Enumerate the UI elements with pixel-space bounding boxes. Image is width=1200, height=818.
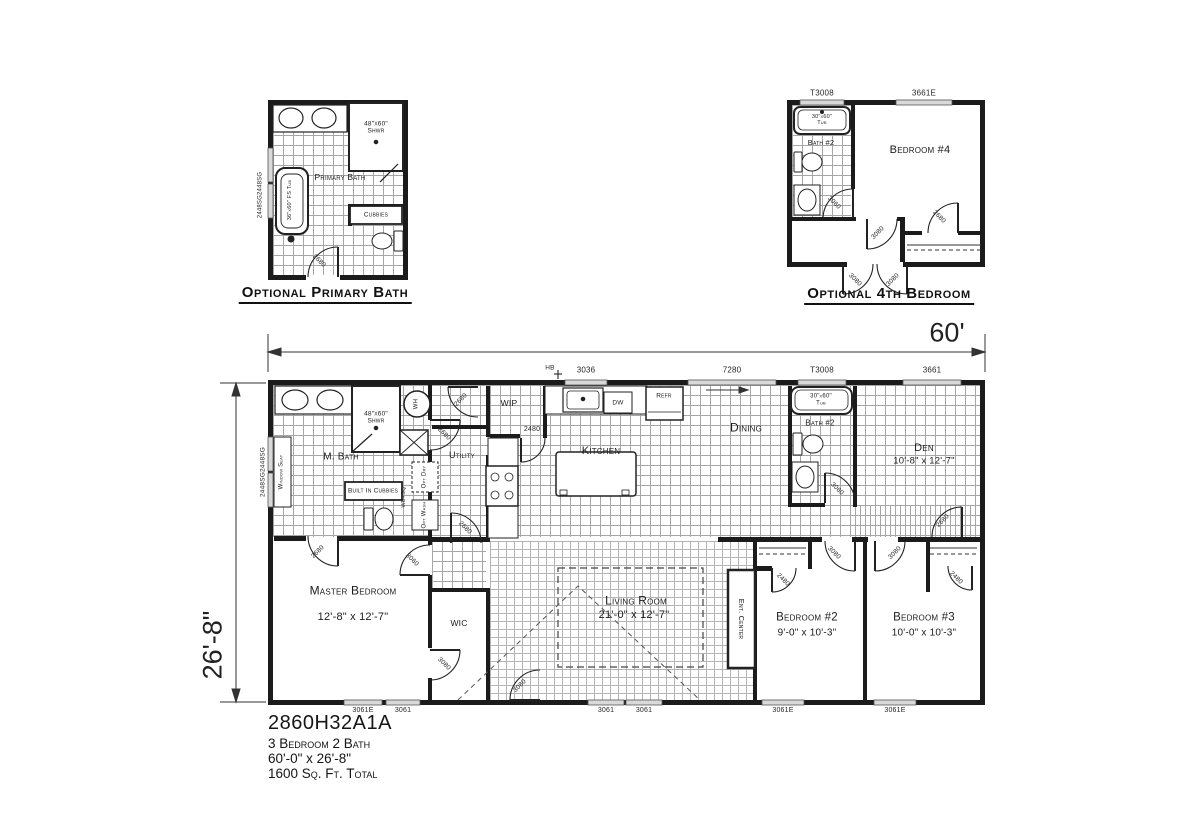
- toilet-bowl: [372, 233, 392, 249]
- detail1-shower-label: 48"x60" Shwr: [364, 121, 388, 136]
- toilet-bowl: [375, 508, 393, 530]
- faucet: [581, 397, 585, 401]
- window-label-3061: 3061: [636, 707, 652, 715]
- plan-sqft: 1600 Sq. Ft. Total: [268, 766, 377, 781]
- toilet-bowl: [803, 435, 823, 453]
- room-label-kitchen: Kitchen: [582, 445, 621, 457]
- window-label-7280: 7280: [723, 367, 742, 376]
- room-dims-master: 12'-8" x 12'-7": [318, 611, 389, 623]
- window-label-t3008: T3008: [810, 367, 834, 376]
- detail2-tub-label: 30"x60" Tub: [812, 114, 832, 126]
- room-label-bath2: Bath #2: [805, 420, 834, 429]
- hose-bib-label: HB: [545, 364, 554, 371]
- cubbies-label: Built In Cubbies: [348, 487, 398, 494]
- lav-bowl: [796, 466, 814, 488]
- shower-drain: [374, 426, 378, 430]
- detail1-room-label: Primary Bath: [315, 173, 366, 183]
- detail1-tub-label: 36"x60" FS Tub: [287, 180, 293, 221]
- wb-sq-label: WB+SQ: [401, 486, 407, 507]
- window-label-3061e: 3061E: [884, 707, 905, 715]
- lav-bowl: [798, 189, 816, 211]
- burner: [505, 473, 513, 481]
- room-dims-living: 21'-0" x 12'-7": [599, 609, 670, 621]
- opt-washer-label: Opt Wash: [422, 502, 429, 529]
- detail2-window-t3008: T3008: [810, 90, 834, 99]
- shower-label: 48"x60" Shwr: [364, 411, 388, 426]
- room-dims-den: 10'-8" x 12'-7": [893, 457, 954, 468]
- room-label-bed2: Bedroom #2: [776, 612, 838, 625]
- plan-graphics: [0, 0, 1200, 818]
- room-label-wip: WIP: [501, 399, 518, 409]
- plan-model-number: 2860H32A1A: [268, 712, 392, 735]
- room-label-wic: WIC: [450, 619, 467, 629]
- shower: [349, 103, 403, 171]
- detail1-window-label: 2448SG2448SG: [258, 172, 265, 218]
- door-label-wip: 2480: [524, 426, 540, 434]
- kitchen-island: [556, 452, 636, 496]
- ent-center-label: Ent. Center: [737, 599, 745, 639]
- water-heater-label: WH: [414, 399, 421, 409]
- toilet-bowl: [802, 153, 822, 171]
- toilet-tank: [364, 508, 373, 530]
- dim-height: 26'-8": [198, 611, 229, 680]
- plan-bed-bath: 3 Bedroom 2 Bath: [268, 736, 370, 751]
- door-gap: [306, 275, 340, 280]
- detail1-caption: Optional Primary Bath: [239, 284, 412, 304]
- range: [486, 466, 518, 506]
- room-dims-bed2: 9'-0" x 10'-3": [778, 627, 837, 638]
- hose-bib-symbol: [554, 370, 562, 379]
- burner: [491, 473, 499, 481]
- room-label-master: Master Bedroom: [310, 584, 397, 597]
- room-label-utility: Utility: [449, 450, 475, 460]
- room-label-bed3: Bedroom #3: [893, 612, 955, 625]
- tub-drain: [288, 236, 294, 242]
- room-dims-bed3: 10'-0" x 10'-3": [892, 627, 957, 638]
- window-seat-label: Window Seat: [279, 455, 286, 490]
- window-label-3061: 3061: [598, 707, 614, 715]
- detail2-room-label: Bedroom #4: [890, 144, 951, 156]
- room-label-den: Den: [914, 442, 934, 454]
- window-label-3661: 3661: [923, 367, 942, 376]
- window-label-left: 2448SG2448SG: [259, 447, 266, 497]
- range-vent-arrow: [706, 387, 748, 393]
- refrigerator-label: Refr: [656, 392, 672, 399]
- burner: [491, 491, 499, 499]
- window-label-3061e: 3061E: [772, 707, 793, 715]
- toilet-tank: [794, 152, 802, 172]
- toilet-tank: [793, 433, 802, 455]
- toilet-tank: [394, 231, 403, 251]
- burner: [505, 491, 513, 499]
- dim-width: 60': [929, 318, 964, 349]
- detail2-window-3661e: 3661E: [912, 90, 936, 99]
- sink-bowl: [282, 390, 308, 410]
- room-label-dining: Dining: [730, 421, 762, 434]
- floor-plan-canvas: 60' 26'-8" HB 3036 7280 T3008 3661 2448S…: [0, 0, 1200, 818]
- detail2-caption: Optional 4th Bedroom: [804, 285, 974, 305]
- room-label-living: Living Room: [605, 594, 667, 607]
- opt-dryer-label: Opt Dry: [422, 466, 429, 489]
- room-label-m-bath: M. Bath: [323, 451, 358, 462]
- detail1-cubbies-label: Cubbies: [364, 211, 388, 218]
- tub-label: 30"x60" Tub: [810, 393, 832, 406]
- window-label-3061: 3061: [395, 707, 411, 715]
- detail2-bath-label: Bath #2: [808, 139, 834, 147]
- plan-size: 60'-0" x 26'-8": [268, 751, 351, 766]
- dishwasher-label: DW: [612, 399, 623, 406]
- window-label-3036: 3036: [577, 367, 596, 376]
- sink-bowl: [317, 390, 343, 410]
